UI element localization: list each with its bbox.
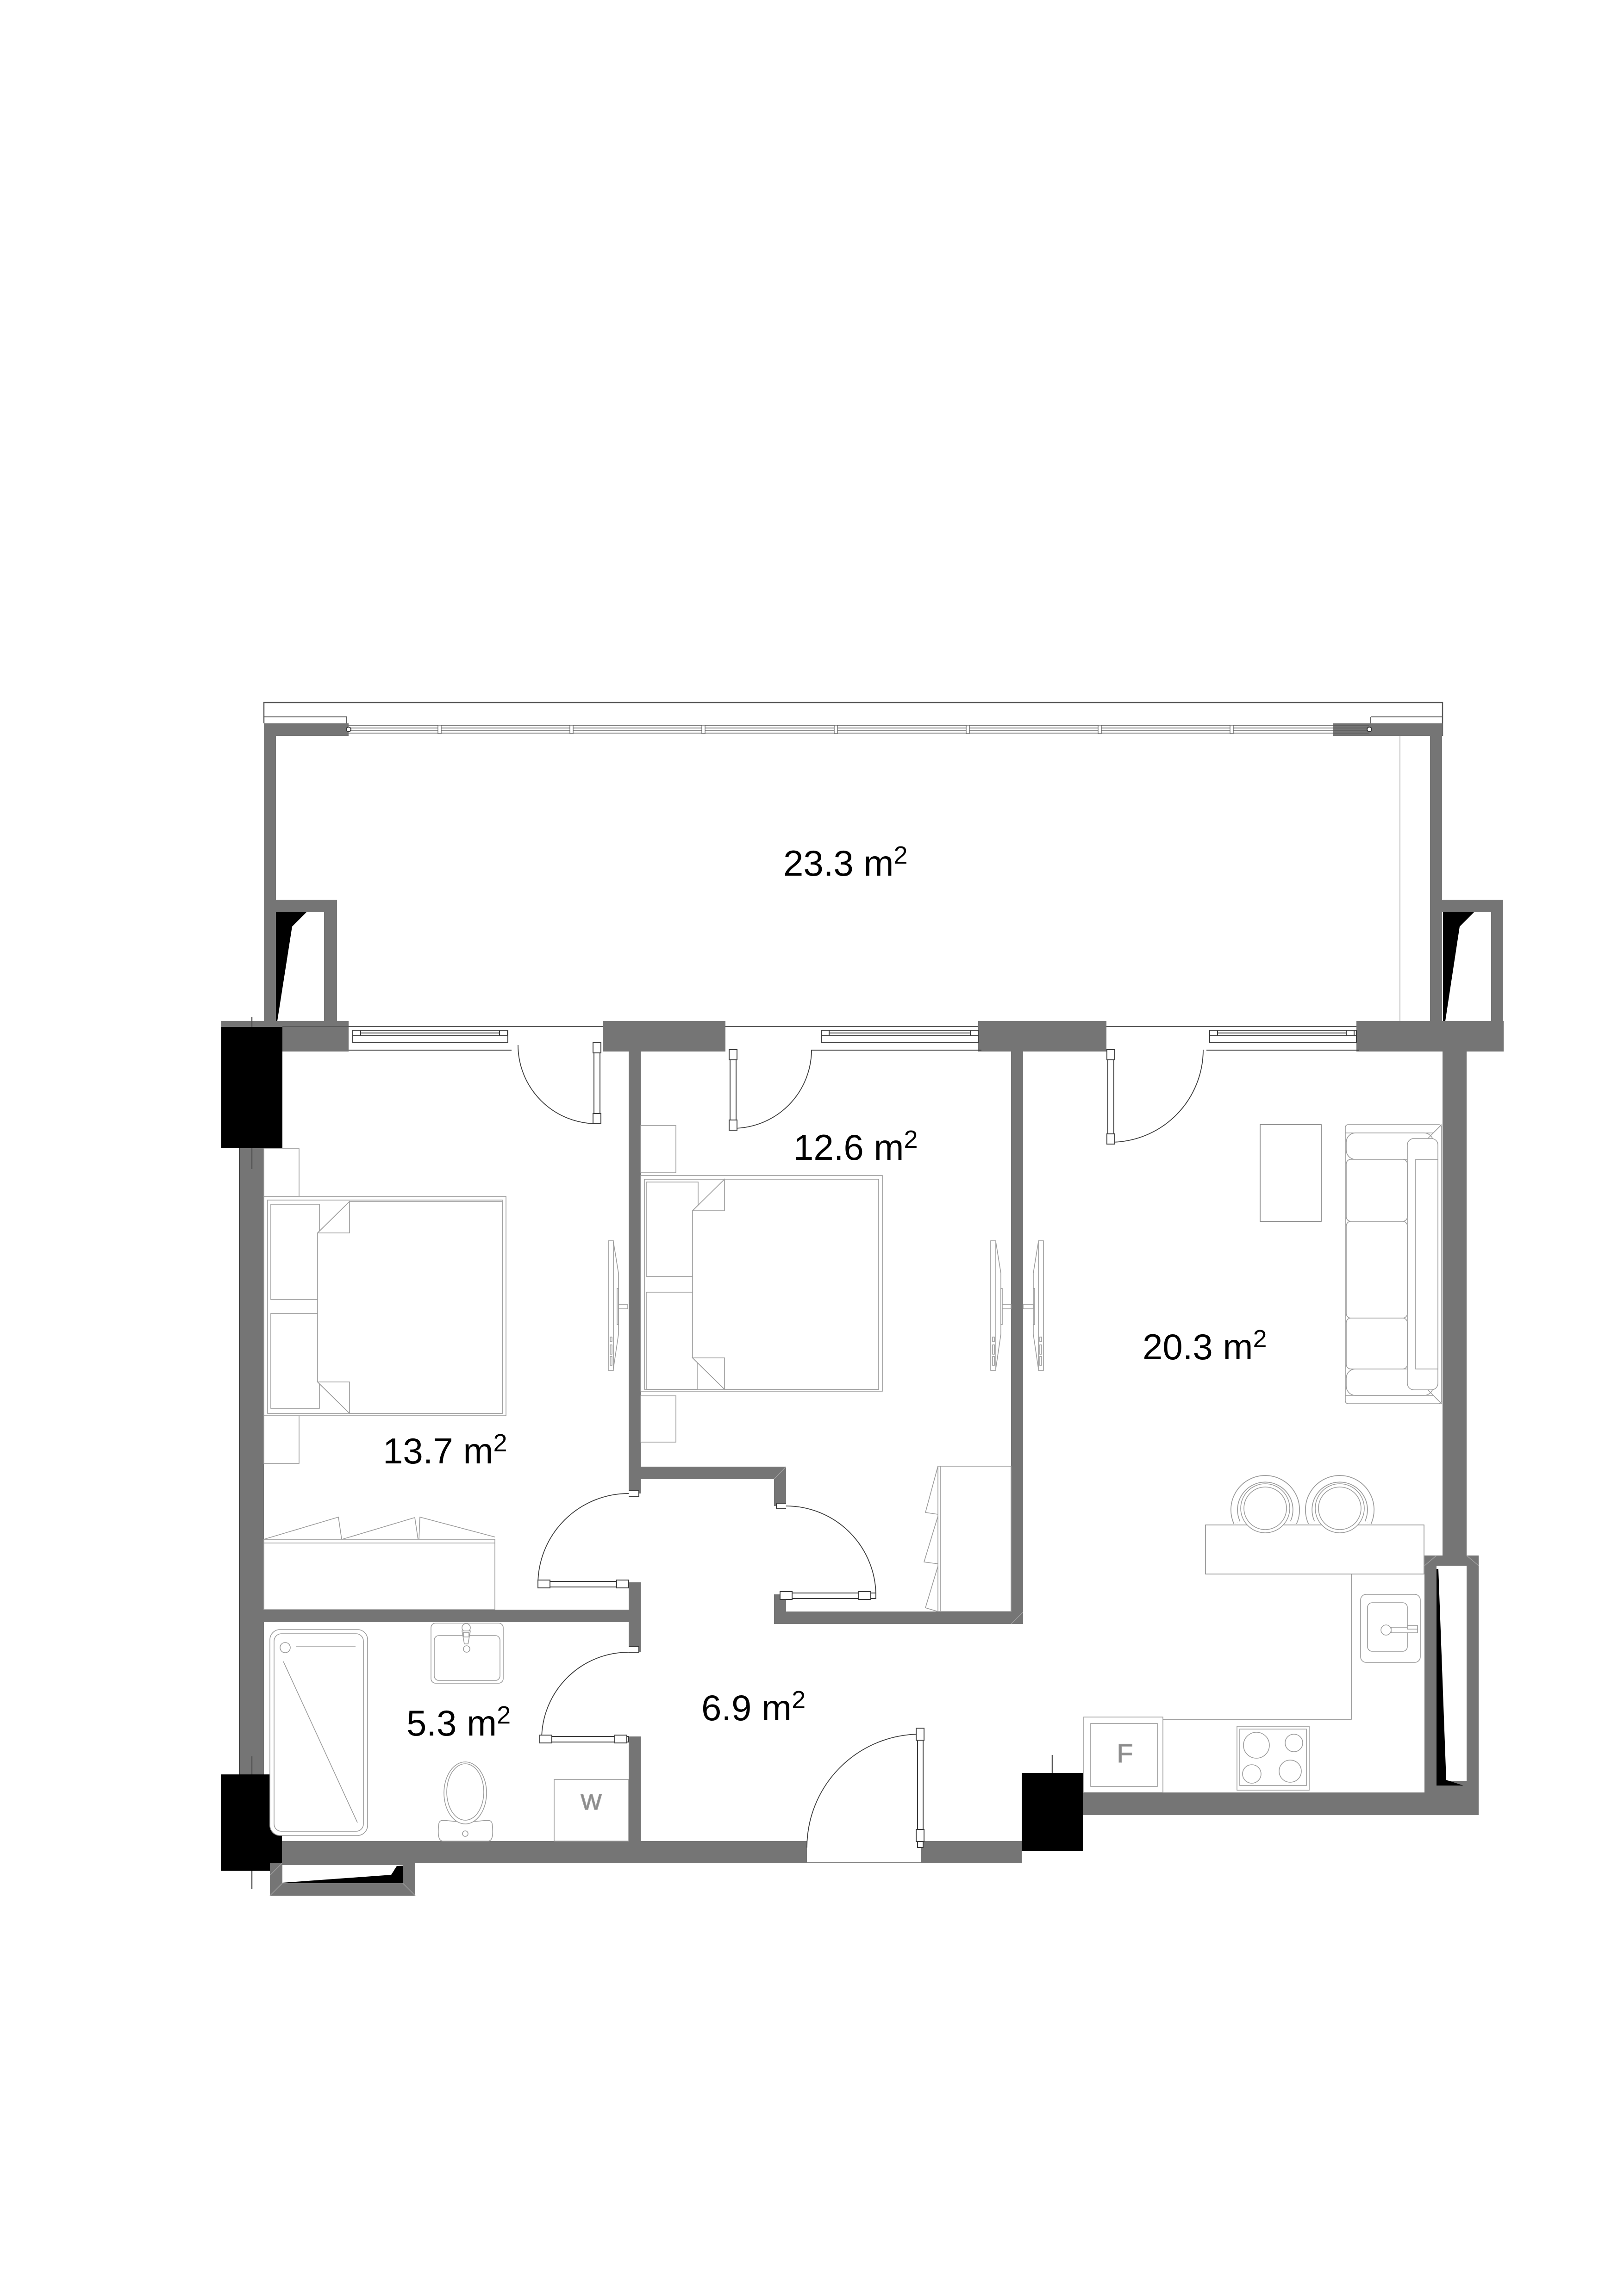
svg-text:12.6 m2: 12.6 m2 (793, 1126, 918, 1168)
svg-text:13.7 m2: 13.7 m2 (383, 1429, 507, 1471)
svg-text:20.3 m2: 20.3 m2 (1143, 1325, 1267, 1367)
svg-text:5.3 m2: 5.3 m2 (406, 1701, 511, 1743)
svg-text:6.9 m2: 6.9 m2 (701, 1686, 806, 1728)
svg-text:W: W (581, 1790, 602, 1815)
svg-text:F: F (1117, 1739, 1133, 1768)
svg-text:23.3 m2: 23.3 m2 (783, 841, 908, 884)
